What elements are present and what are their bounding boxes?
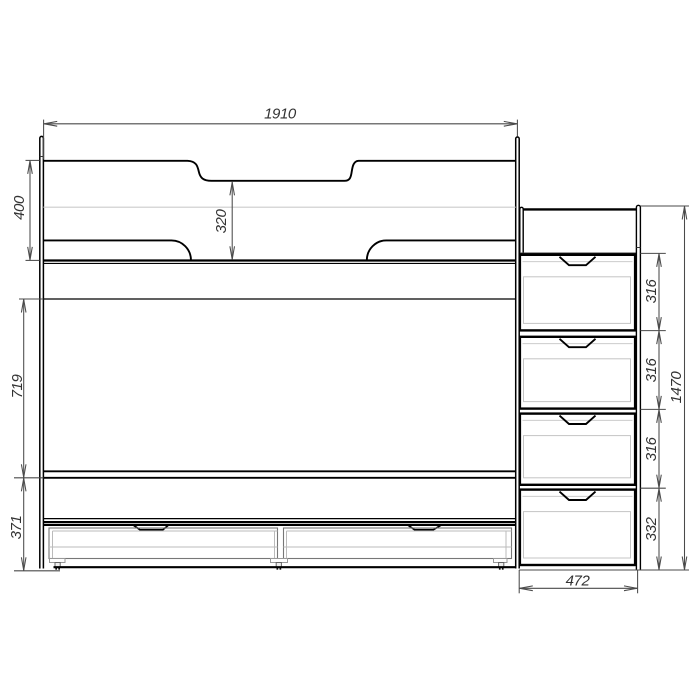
svg-text:332: 332 — [643, 516, 660, 541]
svg-text:320: 320 — [213, 209, 230, 234]
svg-text:472: 472 — [566, 572, 591, 589]
svg-text:316: 316 — [643, 279, 660, 304]
svg-text:316: 316 — [643, 358, 660, 383]
svg-text:1910: 1910 — [264, 105, 297, 122]
svg-text:1470: 1470 — [668, 371, 685, 404]
svg-text:371: 371 — [8, 516, 25, 540]
svg-text:719: 719 — [9, 374, 26, 399]
svg-text:400: 400 — [11, 195, 28, 220]
svg-text:316: 316 — [643, 436, 660, 461]
